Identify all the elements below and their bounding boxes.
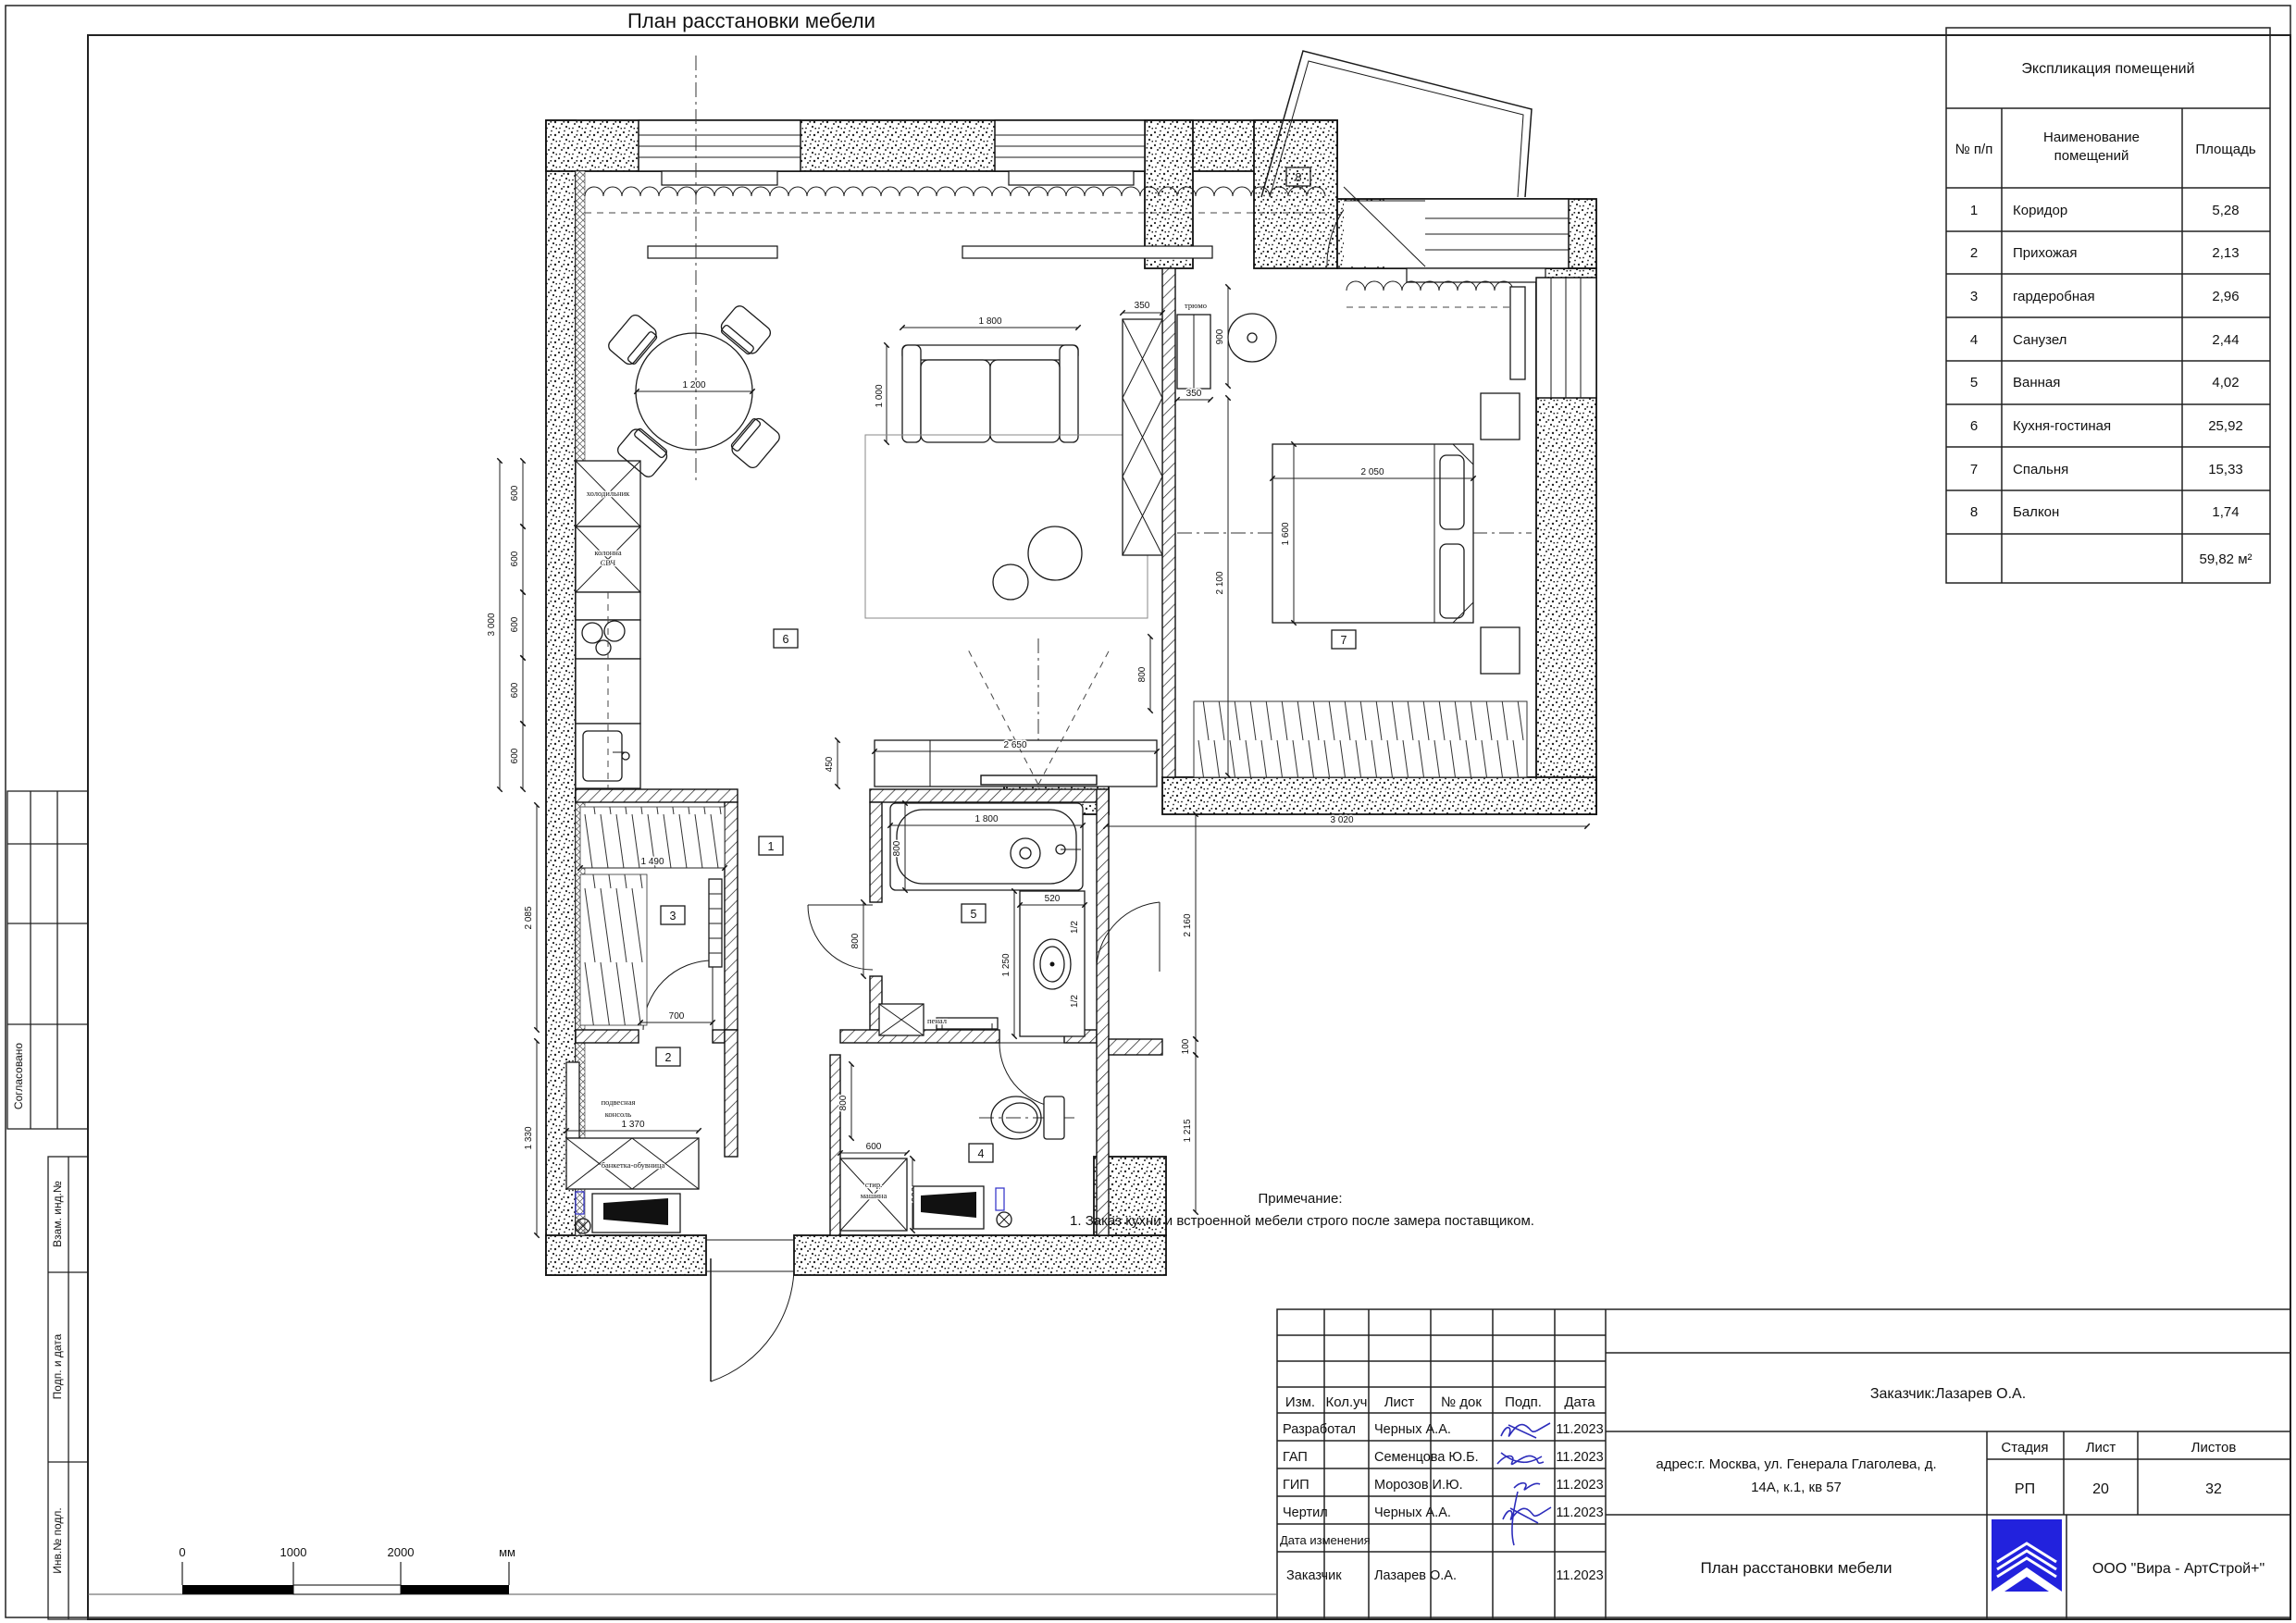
svg-text:3: 3 bbox=[670, 910, 676, 923]
floor-plan: холодильник колонна СВЧ 1 200 1 800 1 00… bbox=[487, 51, 1596, 1381]
svg-text:ГИП: ГИП bbox=[1283, 1478, 1309, 1493]
svg-text:1: 1 bbox=[1970, 203, 1978, 218]
svg-text:Кухня-гостиная: Кухня-гостиная bbox=[2013, 418, 2111, 434]
right-dim-chain: 2 160 100 1 215 bbox=[1181, 814, 1196, 1212]
dim-1490: 1 490 bbox=[640, 857, 664, 867]
dim-bed-w: 2 050 bbox=[1360, 467, 1384, 477]
dim-console-d: 450 bbox=[825, 756, 835, 772]
radiators bbox=[576, 1186, 1011, 1233]
svg-text:2,13: 2,13 bbox=[2212, 245, 2239, 261]
stage-label: Стадия bbox=[2001, 1440, 2048, 1456]
explication-rows: 1 Коридор 5,28 2 Прихожая 2,13 3 гардеро… bbox=[1970, 203, 2253, 567]
bedroom: трюмо 2 050 1 600 900 350 2 100 3 020 bbox=[1106, 287, 1587, 826]
sofa: 1 800 1 000 bbox=[875, 316, 1078, 442]
stamp-headers: Изм. Кол.уч Лист № док Подп. Дата bbox=[1285, 1394, 1595, 1410]
svg-text:1,74: 1,74 bbox=[2212, 504, 2239, 520]
svg-text:Прихожая: Прихожая bbox=[2013, 245, 2078, 261]
page-title: План расстановки мебели bbox=[627, 9, 875, 32]
svg-text:№ док: № док bbox=[1441, 1394, 1482, 1410]
bench-label: банкетка-обувница bbox=[602, 1160, 665, 1170]
dim-3020: 3 020 bbox=[1330, 815, 1353, 825]
svg-text:Морозов И.Ю.: Морозов И.Ю. bbox=[1374, 1478, 1463, 1493]
signatures bbox=[1497, 1423, 1551, 1545]
dim-900: 900 bbox=[1215, 328, 1225, 344]
doc-title: План расстановки мебели bbox=[1701, 1559, 1893, 1577]
scale-unit: мм bbox=[499, 1545, 515, 1559]
dim-k600-4: 600 bbox=[510, 682, 520, 698]
svg-text:11.2023: 11.2023 bbox=[1556, 1505, 1603, 1520]
svg-text:Разработал: Разработал bbox=[1283, 1422, 1356, 1437]
svg-text:5: 5 bbox=[1970, 375, 1978, 390]
room-label-5: 5 bbox=[962, 904, 986, 923]
hallway: подвесная консоль банкетка-обувница 1 37… bbox=[566, 1062, 699, 1189]
dim-k3000: 3 000 bbox=[487, 613, 497, 636]
dim-wc-door: 800 bbox=[838, 1095, 849, 1110]
svg-text:Санузел: Санузел bbox=[2013, 332, 2066, 348]
svg-text:1: 1 bbox=[768, 840, 775, 853]
room-label-1: 1 bbox=[759, 836, 783, 855]
stage-value: РП bbox=[2015, 1481, 2035, 1497]
svg-text:Подп.: Подп. bbox=[1505, 1394, 1542, 1410]
wash-label-2: машина bbox=[861, 1191, 887, 1200]
dim-2085: 2 085 bbox=[524, 906, 534, 929]
penal-label: пенал bbox=[927, 1016, 948, 1025]
svg-text:4: 4 bbox=[1970, 332, 1978, 348]
svg-text:Лазарев О.А.: Лазарев О.А. bbox=[1374, 1568, 1457, 1583]
svg-text:7: 7 bbox=[1341, 634, 1347, 647]
svch-label-1: колонна bbox=[594, 548, 621, 557]
svg-text:Балкон: Балкон bbox=[2013, 504, 2059, 520]
dim-tub-l: 1 800 bbox=[974, 814, 998, 824]
svg-text:3: 3 bbox=[1970, 289, 1978, 304]
closet-band bbox=[1194, 701, 1527, 777]
svg-text:Ванная: Ванная bbox=[2013, 375, 2060, 390]
explication-title: Экспликация помещений bbox=[2021, 61, 2194, 77]
svg-text:6: 6 bbox=[783, 633, 789, 646]
note-line-1: 1. Заказ кухни и встроенной мебели строг… bbox=[1070, 1213, 1534, 1229]
kitchen-units: холодильник колонна СВЧ bbox=[576, 461, 640, 788]
svch-label-2: СВЧ bbox=[601, 558, 616, 567]
company-name: ООО "Вира - АртСтрой+" bbox=[2092, 1561, 2265, 1577]
window-bedroom-right bbox=[1536, 278, 1596, 398]
dim-350b: 350 bbox=[1186, 389, 1202, 399]
windows bbox=[639, 120, 1596, 398]
svg-text:11.2023: 11.2023 bbox=[1556, 1478, 1603, 1493]
svg-text:11.2023: 11.2023 bbox=[1556, 1568, 1603, 1583]
col-num: № п/п bbox=[1955, 142, 1993, 157]
dim-700: 700 bbox=[669, 1011, 685, 1022]
tv-console: 2 650 450 800 bbox=[825, 637, 1157, 787]
dim-k600-5: 600 bbox=[510, 748, 520, 763]
dim-half-2: 1/2 bbox=[1070, 995, 1080, 1008]
dim-bath-door: 800 bbox=[850, 933, 861, 948]
svg-text:Изм.: Изм. bbox=[1285, 1394, 1315, 1410]
console-label-2: консоль bbox=[605, 1109, 632, 1119]
dim-100: 100 bbox=[1181, 1038, 1191, 1054]
svg-text:гардеробная: гардеробная bbox=[2013, 289, 2095, 304]
customer: Заказчик:Лазарев О.А. bbox=[1870, 1386, 2026, 1402]
side-podp: Подп. и дата bbox=[51, 1333, 64, 1399]
dim-1330: 1 330 bbox=[524, 1126, 534, 1149]
list-value: 20 bbox=[2092, 1481, 2109, 1497]
fridge-label: холодильник bbox=[587, 489, 630, 498]
room-labels: 1 2 3 4 5 6 7 8 bbox=[656, 167, 1356, 1162]
console-label-1: подвесная bbox=[602, 1097, 636, 1107]
dim-bed-l: 1 600 bbox=[1281, 522, 1291, 545]
svg-text:2: 2 bbox=[1970, 245, 1978, 261]
svg-text:Чертил: Чертил bbox=[1283, 1505, 1328, 1520]
kitchen-dim-chain: 600 600 600 600 600 3 000 bbox=[487, 461, 523, 789]
svg-text:Дата: Дата bbox=[1564, 1394, 1595, 1410]
dim-sofa-w: 1 800 bbox=[978, 316, 1001, 327]
dim-sink: 520 bbox=[1045, 894, 1061, 904]
scale-0: 0 bbox=[179, 1545, 185, 1559]
svg-text:Заказчик: Заказчик bbox=[1286, 1568, 1342, 1583]
door-entrance bbox=[706, 1240, 794, 1381]
dim-k600-1: 600 bbox=[510, 485, 520, 501]
svg-text:6: 6 bbox=[1970, 418, 1978, 434]
bathroom: 1 800 800 520 1 250 1/2 1/2 пенал 800 bbox=[850, 803, 1085, 1036]
dim-k600-2: 600 bbox=[510, 551, 520, 566]
scale-bar: 0 1000 2000 мм bbox=[88, 1545, 1277, 1594]
explication-table: Экспликация помещений № п/п Наименование… bbox=[1946, 28, 2270, 583]
listov-label: Листов bbox=[2191, 1440, 2237, 1456]
svg-text:11.2023: 11.2023 bbox=[1556, 1450, 1603, 1465]
room-label-3: 3 bbox=[661, 906, 685, 924]
svg-text:8: 8 bbox=[1970, 504, 1978, 520]
svg-text:2: 2 bbox=[665, 1051, 672, 1064]
room-label-6: 6 bbox=[774, 629, 798, 648]
svg-text:2,44: 2,44 bbox=[2212, 332, 2239, 348]
side-agreed: Согласовано bbox=[12, 1043, 25, 1109]
col-area: Площадь bbox=[2195, 142, 2255, 157]
svg-text:7: 7 bbox=[1970, 462, 1978, 477]
company-logo bbox=[1992, 1519, 2062, 1592]
svg-text:4,02: 4,02 bbox=[2212, 375, 2239, 390]
svg-text:2,96: 2,96 bbox=[2212, 289, 2239, 304]
svg-text:25,92: 25,92 bbox=[2208, 418, 2243, 434]
note-title: Примечание: bbox=[1259, 1191, 1343, 1207]
side-vzam: Взам. инд.№ bbox=[51, 1181, 64, 1247]
svg-text:Коридор: Коридор bbox=[2013, 203, 2067, 218]
side-inv: Инв.№ подл. bbox=[51, 1507, 64, 1573]
svg-text:15,33: 15,33 bbox=[2208, 462, 2243, 477]
svg-text:Кол.уч: Кол.уч bbox=[1326, 1394, 1368, 1410]
shelf-column: 350 bbox=[1123, 301, 1162, 555]
address-2: 14А, к.1, кв 57 bbox=[1751, 1480, 1842, 1495]
svg-text:Семенцова Ю.Б.: Семенцова Ю.Б. bbox=[1374, 1450, 1479, 1465]
dim-1370: 1 370 bbox=[621, 1120, 644, 1130]
dim-shelf: 350 bbox=[1135, 301, 1150, 311]
dim-k600-3: 600 bbox=[510, 616, 520, 632]
dim-wash-w: 600 bbox=[866, 1142, 882, 1152]
rug-coffee-tables bbox=[865, 435, 1148, 618]
address-1: адрес:г. Москва, ул. Генерала Глаголева,… bbox=[1656, 1456, 1936, 1472]
side-strips: Согласовано Взам. инд.№ Подп. и дата Инв… bbox=[7, 791, 88, 1619]
svg-text:Лист: Лист bbox=[1384, 1394, 1415, 1410]
room-label-2: 2 bbox=[656, 1047, 680, 1066]
dim-2100: 2 100 bbox=[1215, 571, 1225, 594]
list-label: Лист bbox=[2086, 1440, 2116, 1456]
wash-label-1: стир. bbox=[865, 1180, 882, 1189]
dim-tub-w: 800 bbox=[892, 840, 902, 856]
dining-table: 1 200 bbox=[606, 304, 782, 479]
svg-text:Черных А.А.: Черных А.А. bbox=[1374, 1505, 1451, 1520]
svg-text:4: 4 bbox=[978, 1147, 985, 1160]
dim-console-w: 2 650 bbox=[1003, 740, 1026, 750]
window-living-left bbox=[639, 120, 800, 258]
svg-text:ГАП: ГАП bbox=[1283, 1450, 1308, 1465]
svg-text:5: 5 bbox=[971, 908, 977, 921]
dim-half-1: 1/2 bbox=[1070, 921, 1080, 934]
scale-1000: 1000 bbox=[280, 1545, 307, 1559]
col-name-1: Наименование bbox=[2043, 130, 2140, 145]
svg-text:Спальня: Спальня bbox=[2013, 462, 2068, 477]
scale-2000: 2000 bbox=[388, 1545, 415, 1559]
svg-text:11.2023: 11.2023 bbox=[1556, 1422, 1603, 1437]
dim-passage: 800 bbox=[1137, 666, 1148, 682]
dim-1215: 1 215 bbox=[1183, 1119, 1193, 1142]
room-label-4: 4 bbox=[969, 1144, 993, 1162]
dim-sofa-d: 1 000 bbox=[875, 384, 885, 407]
explication-total: 59,82 м² bbox=[2199, 551, 2252, 567]
col-name-2: помещений bbox=[2054, 148, 2129, 164]
dim-table: 1 200 bbox=[682, 380, 705, 390]
dim-2160: 2 160 bbox=[1183, 913, 1193, 936]
exterior-walls bbox=[546, 120, 1596, 1275]
svg-text:8: 8 bbox=[1296, 171, 1302, 184]
dim-vanity: 1 250 bbox=[1001, 953, 1011, 976]
svg-text:Черных А.А.: Черных А.А. bbox=[1374, 1422, 1451, 1437]
room-label-7: 7 bbox=[1332, 630, 1356, 649]
svg-text:5,28: 5,28 bbox=[2212, 203, 2239, 218]
drawing-sheet: План расстановки мебели bbox=[0, 0, 2296, 1623]
tryumo-label: трюмо bbox=[1185, 301, 1207, 310]
listov-value: 32 bbox=[2205, 1481, 2222, 1497]
svg-text:Дата изменения: Дата изменения bbox=[1280, 1533, 1371, 1547]
title-block: Изм. Кол.уч Лист № док Подп. Дата Разраб… bbox=[1277, 1309, 2290, 1619]
